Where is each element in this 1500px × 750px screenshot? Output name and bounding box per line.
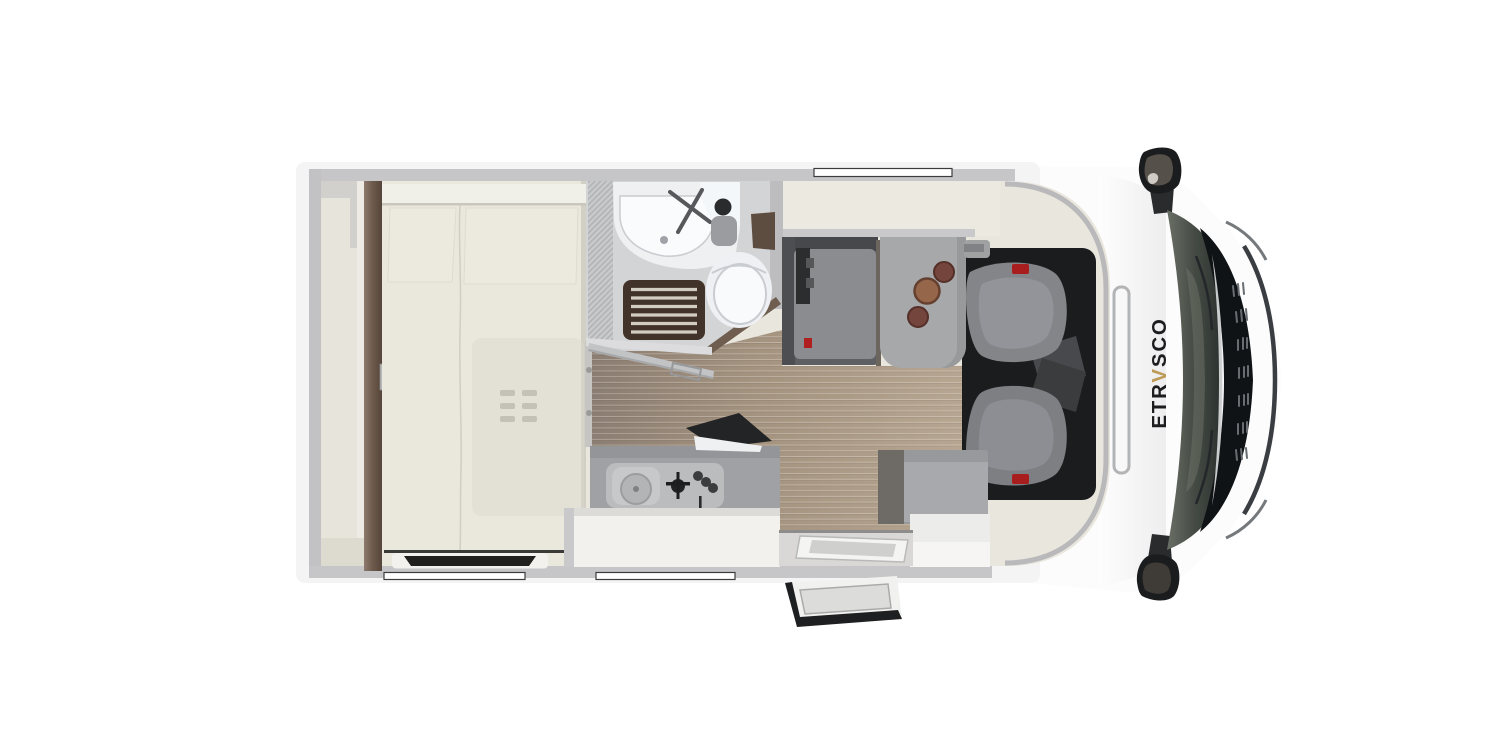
svg-text:ETRVSCO: ETRVSCO — [1148, 317, 1171, 428]
